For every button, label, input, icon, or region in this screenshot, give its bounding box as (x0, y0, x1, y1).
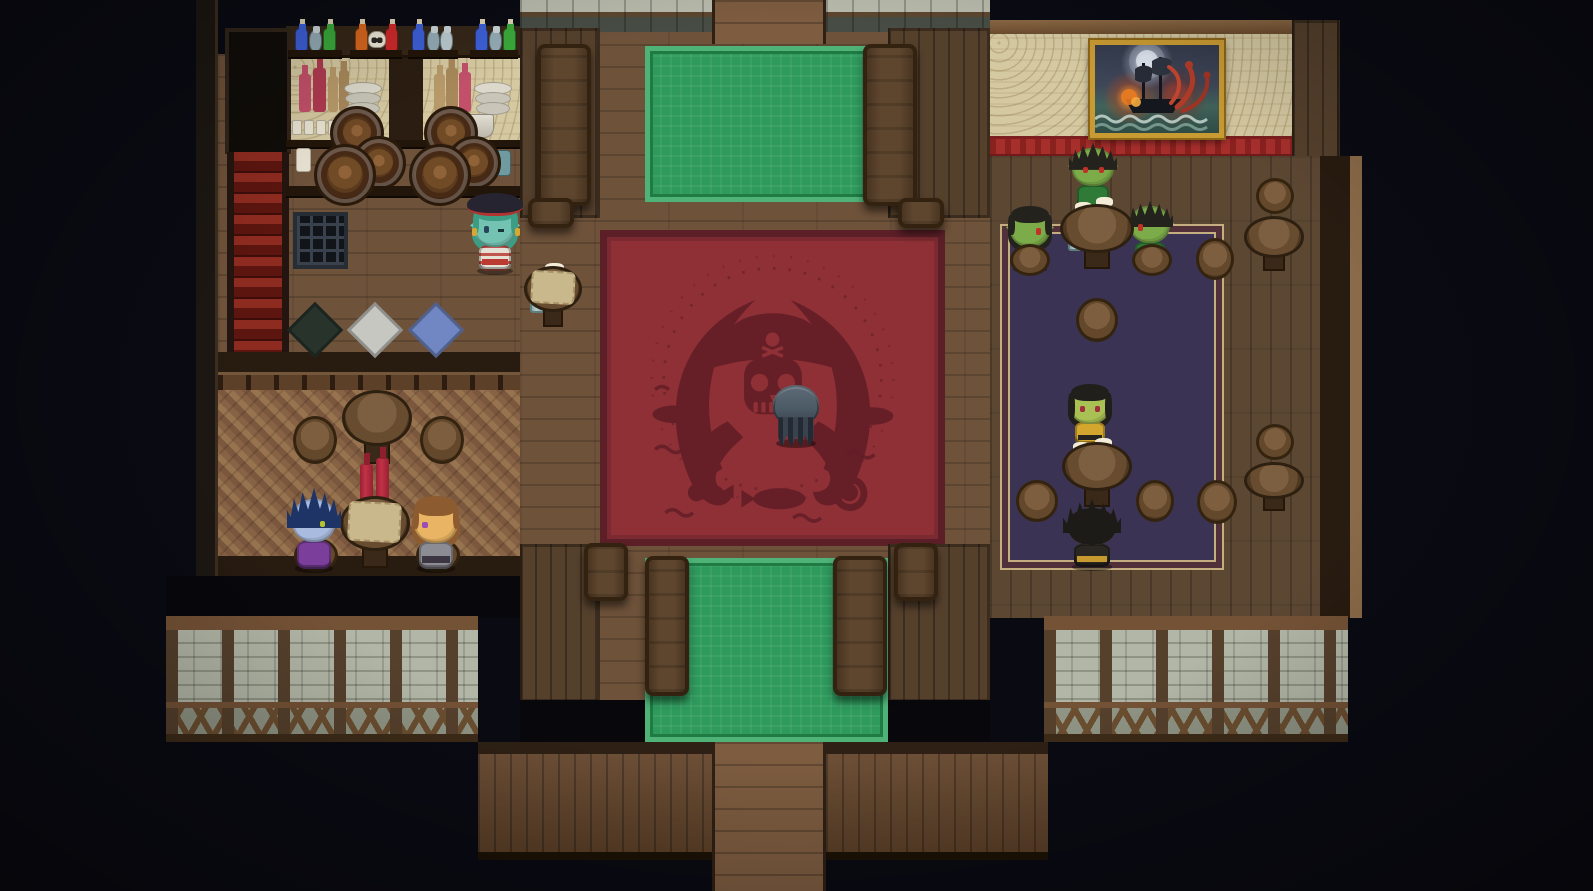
right-wall-edge (1320, 156, 1350, 618)
potion-bottle (355, 28, 368, 52)
shelf-board (288, 50, 342, 59)
potion-neck (507, 23, 514, 31)
right-wood-corner (1292, 20, 1340, 160)
bottle-neck (437, 65, 443, 75)
bottle-neck (380, 447, 386, 459)
potion-bottle (385, 28, 398, 52)
skull-decoration (368, 31, 386, 48)
eye (1036, 228, 1041, 234)
potion-bottle (503, 28, 516, 52)
potion-cork (508, 19, 513, 24)
small-mug (316, 120, 326, 135)
potion-cork (480, 19, 485, 24)
barrel (409, 144, 471, 206)
wine-bottle (459, 72, 471, 112)
long-table (645, 556, 689, 696)
long-table (894, 543, 938, 601)
potion-cork (328, 19, 333, 24)
shelf-board (350, 50, 402, 59)
small-mug (304, 120, 314, 135)
stool (1196, 238, 1234, 280)
table-top (1244, 216, 1304, 258)
hooded-tentacled-figure[interactable] (770, 384, 822, 448)
stool (1010, 244, 1050, 276)
table-cloth (530, 270, 576, 306)
hair-spiky (1069, 143, 1117, 170)
stool (420, 416, 464, 464)
bottle-neck (317, 59, 323, 69)
clay-jar (296, 148, 311, 172)
char-belt (422, 556, 449, 563)
plate-stack (474, 82, 514, 116)
hair-spiky (287, 488, 341, 529)
bottle-neck (364, 453, 370, 465)
wine-bottle (328, 76, 338, 112)
hair-cap (1011, 206, 1049, 223)
earring-left (472, 228, 477, 236)
potion-cork (360, 19, 365, 24)
hair-cap (1071, 384, 1109, 401)
jug-bottle (309, 30, 322, 52)
patron-blue-elf[interactable] (288, 494, 340, 572)
jug-bottle (440, 30, 453, 52)
bottle-neck (449, 59, 455, 69)
stool (1136, 480, 1174, 522)
spiky-haired-patron[interactable] (1064, 504, 1120, 570)
eye (1080, 406, 1085, 412)
jug-neck (444, 26, 451, 33)
char-belt (1077, 556, 1106, 562)
potion-bottle (475, 28, 488, 52)
table-top (1060, 204, 1134, 253)
shelf-board (470, 50, 518, 59)
stone-wall-left (166, 616, 478, 742)
stool (1256, 178, 1294, 214)
stone-wall-right (1044, 616, 1348, 742)
jug-bottle (489, 30, 502, 52)
stool (1016, 480, 1058, 522)
potion-neck (416, 23, 423, 31)
table-top (1062, 442, 1132, 491)
hair-cap (415, 496, 457, 516)
potion-bottle (323, 28, 336, 52)
floor-grate (293, 212, 348, 269)
barrel (314, 144, 376, 206)
jug-bottle (427, 30, 440, 52)
long-table (863, 44, 917, 206)
hair-lock-left (1068, 393, 1074, 420)
left-edge-beam (196, 0, 218, 618)
eye (484, 226, 489, 232)
hair-lock-right (1045, 215, 1051, 235)
long-table (537, 44, 591, 206)
potion-cork (300, 19, 305, 24)
round-table (524, 266, 582, 330)
green-carpet-top (645, 46, 885, 202)
eye (320, 521, 325, 528)
eye (1138, 224, 1143, 230)
table-top (1244, 462, 1304, 499)
bottle-neck (462, 63, 468, 73)
game-stage (0, 0, 1593, 891)
exit-walkway[interactable] (712, 742, 826, 891)
bartender-pirate[interactable] (470, 202, 520, 274)
bar-pillar (389, 56, 423, 148)
eye (1083, 167, 1088, 173)
potion-neck (389, 23, 396, 31)
long-table (833, 556, 887, 696)
void-bottom-left (520, 700, 645, 744)
earring-right (515, 228, 520, 236)
bottle-neck (330, 67, 336, 77)
void-bottom-right (888, 700, 990, 744)
stool (1197, 480, 1237, 524)
eye (422, 522, 427, 529)
potion-cork (417, 19, 422, 24)
shelf-board (408, 50, 458, 59)
potion-bottle (412, 28, 425, 52)
round-table (1244, 462, 1304, 514)
round-table (340, 496, 410, 572)
right-red-stripe (990, 136, 1292, 158)
potion-neck (359, 23, 366, 31)
potion-neck (299, 23, 306, 31)
potion-bottle (295, 28, 308, 52)
round-table (1244, 216, 1304, 274)
long-table (528, 198, 574, 228)
jug-neck (431, 26, 438, 33)
bottle-neck (341, 61, 347, 71)
hair-lock-left (1008, 215, 1014, 235)
stairs-doorway[interactable] (225, 28, 291, 154)
round-table (1060, 204, 1134, 272)
jug-neck (493, 26, 500, 33)
wine-bottle (313, 68, 326, 112)
painting-scene-icon (1095, 45, 1219, 133)
long-table (584, 543, 628, 601)
plank-wall-right (826, 742, 1048, 860)
stool (1256, 424, 1294, 460)
potion-cork (390, 19, 395, 24)
potion-neck (327, 23, 334, 31)
potion-neck (479, 23, 486, 31)
wine-bottle (299, 74, 311, 112)
char-belt (482, 259, 508, 265)
hall-walkway-top[interactable] (712, 0, 826, 44)
long-table (898, 198, 944, 228)
small-mug (292, 120, 302, 135)
bottle-neck (302, 65, 308, 75)
eye (1099, 167, 1104, 173)
table-top (342, 390, 412, 446)
stool (1132, 244, 1172, 276)
table-cloth (347, 501, 402, 543)
plank-wall-left (478, 742, 712, 860)
patron-adventurer[interactable] (410, 496, 462, 572)
closed-eye (498, 229, 504, 232)
left-divider (218, 352, 520, 374)
hair-spiky (1063, 499, 1121, 533)
char-body (297, 541, 330, 569)
red-staircase[interactable] (227, 152, 289, 374)
kraken-painting (1090, 40, 1224, 138)
left-room-shadow (166, 576, 520, 618)
eye (1095, 406, 1100, 412)
hair-lock-right (1105, 393, 1111, 420)
round-table (1062, 442, 1132, 510)
right-edge-light (1350, 156, 1362, 618)
stool (293, 416, 337, 464)
stool (1076, 298, 1118, 342)
round-table (342, 390, 412, 468)
jug-neck (313, 26, 320, 33)
tricorn-hat (467, 193, 523, 216)
left-railing (218, 372, 520, 392)
